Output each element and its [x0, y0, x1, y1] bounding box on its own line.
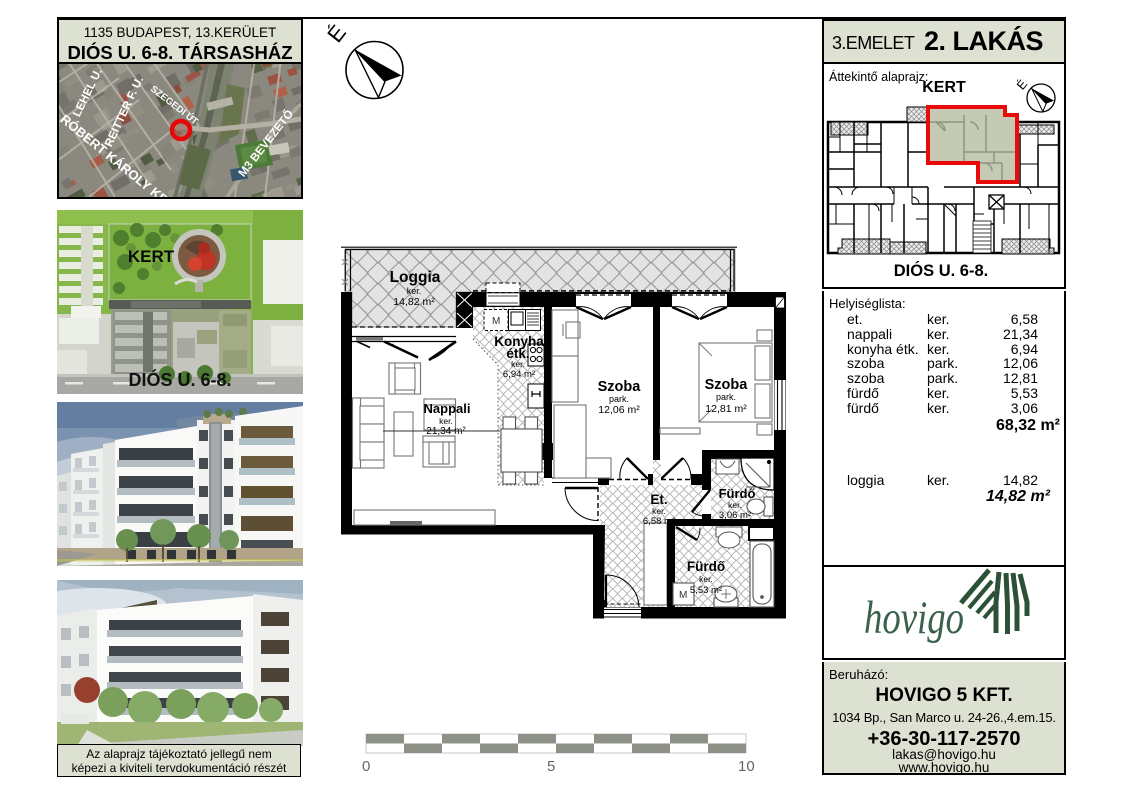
svg-text:hovigo: hovigo	[864, 592, 964, 644]
svg-text:park.: park.	[716, 392, 736, 402]
svg-text:ker.: ker.	[652, 506, 666, 516]
svg-text:Nappali: Nappali	[424, 401, 471, 416]
svg-text:14,82 m²: 14,82 m²	[393, 296, 435, 308]
svg-text:Fürdő: Fürdő	[719, 486, 756, 501]
svg-text:10: 10	[738, 758, 755, 775]
svg-text:park.: park.	[609, 394, 629, 404]
svg-text:Fürdő: Fürdő	[687, 559, 725, 574]
svg-text:KERT: KERT	[128, 247, 175, 266]
svg-text:M: M	[492, 316, 500, 327]
svg-text:Szoba: Szoba	[705, 377, 749, 393]
svg-text:12,81 m²: 12,81 m²	[705, 403, 747, 415]
svg-text:ker.: ker.	[699, 574, 713, 584]
svg-text:DIÓS U. 6-8.: DIÓS U. 6-8.	[894, 261, 988, 280]
svg-text:ker.: ker.	[728, 500, 742, 510]
svg-text:Loggia: Loggia	[390, 269, 441, 286]
svg-text:ker.: ker.	[439, 416, 453, 426]
svg-text:5: 5	[547, 758, 555, 775]
svg-text:0: 0	[362, 758, 370, 775]
svg-text:ker.: ker.	[407, 286, 422, 296]
svg-text:12,06 m²: 12,06 m²	[598, 404, 640, 416]
svg-text:6,58 m²: 6,58 m²	[643, 516, 675, 527]
svg-text:M: M	[679, 590, 687, 601]
svg-text:É: É	[322, 20, 351, 47]
svg-text:3,06 m²: 3,06 m²	[719, 510, 751, 521]
svg-text:6,94 m²: 6,94 m²	[503, 369, 535, 380]
svg-text:Szoba: Szoba	[598, 379, 642, 395]
svg-text:ker.: ker.	[511, 359, 525, 369]
svg-text:Et.: Et.	[650, 492, 667, 507]
svg-text:5,53 m²: 5,53 m²	[690, 585, 722, 596]
svg-text:É: É	[1016, 77, 1030, 93]
